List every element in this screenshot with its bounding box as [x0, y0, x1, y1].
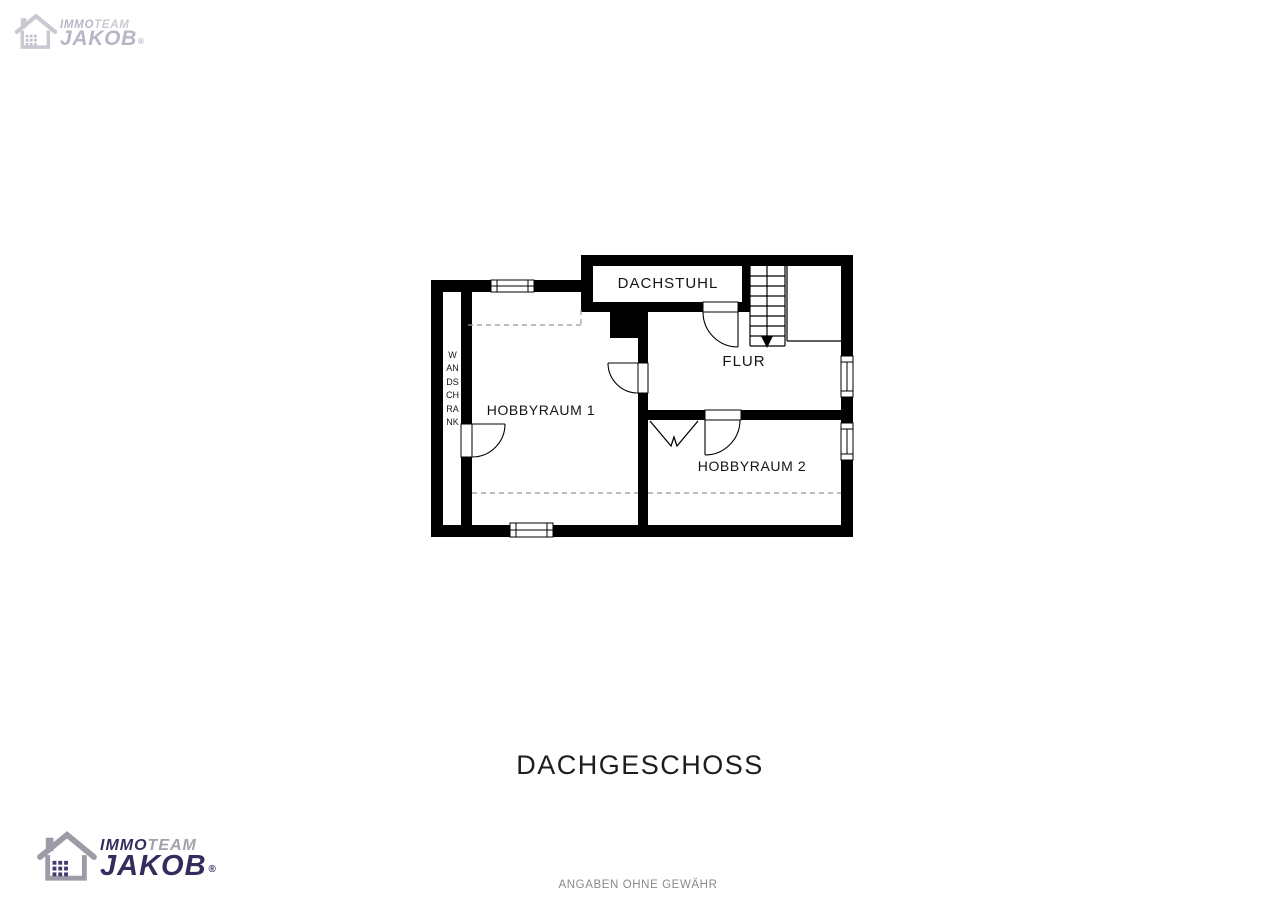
logo-bottom: IMMOTEAM JAKOB®	[36, 830, 217, 889]
floor-plan-page: IMMOTEAM JAKOB®	[0, 0, 1280, 906]
door-wandschrank	[472, 424, 505, 457]
house-icon	[36, 830, 98, 889]
room-label-hobbyraum2: HOBBYRAUM 2	[662, 458, 842, 474]
walls	[431, 255, 853, 537]
registered-mark: ®	[209, 864, 217, 875]
window-top	[491, 280, 534, 292]
room-label-hobbyraum1: HOBBYRAUM 1	[451, 402, 631, 418]
door-dachstuhl	[703, 312, 738, 347]
closet-symbol	[650, 421, 698, 446]
room-label-dachstuhl: DACHSTUHL	[593, 275, 743, 292]
doors	[472, 312, 740, 457]
window-flur-right	[841, 356, 853, 397]
room-label-wandschrank: WANDSCHRANK	[446, 349, 459, 429]
door-hobbyraum1	[608, 363, 638, 393]
window-hobbyraum2-right	[841, 423, 853, 460]
page-title: DACHGESCHOSS	[0, 750, 1280, 781]
window-bottom	[510, 523, 553, 537]
logo-jakob: JAKOB	[100, 850, 207, 883]
room-label-flur: FLUR	[694, 353, 794, 370]
door-frames	[461, 302, 741, 457]
staircase	[750, 266, 841, 346]
door-hobbyraum2	[705, 420, 740, 455]
